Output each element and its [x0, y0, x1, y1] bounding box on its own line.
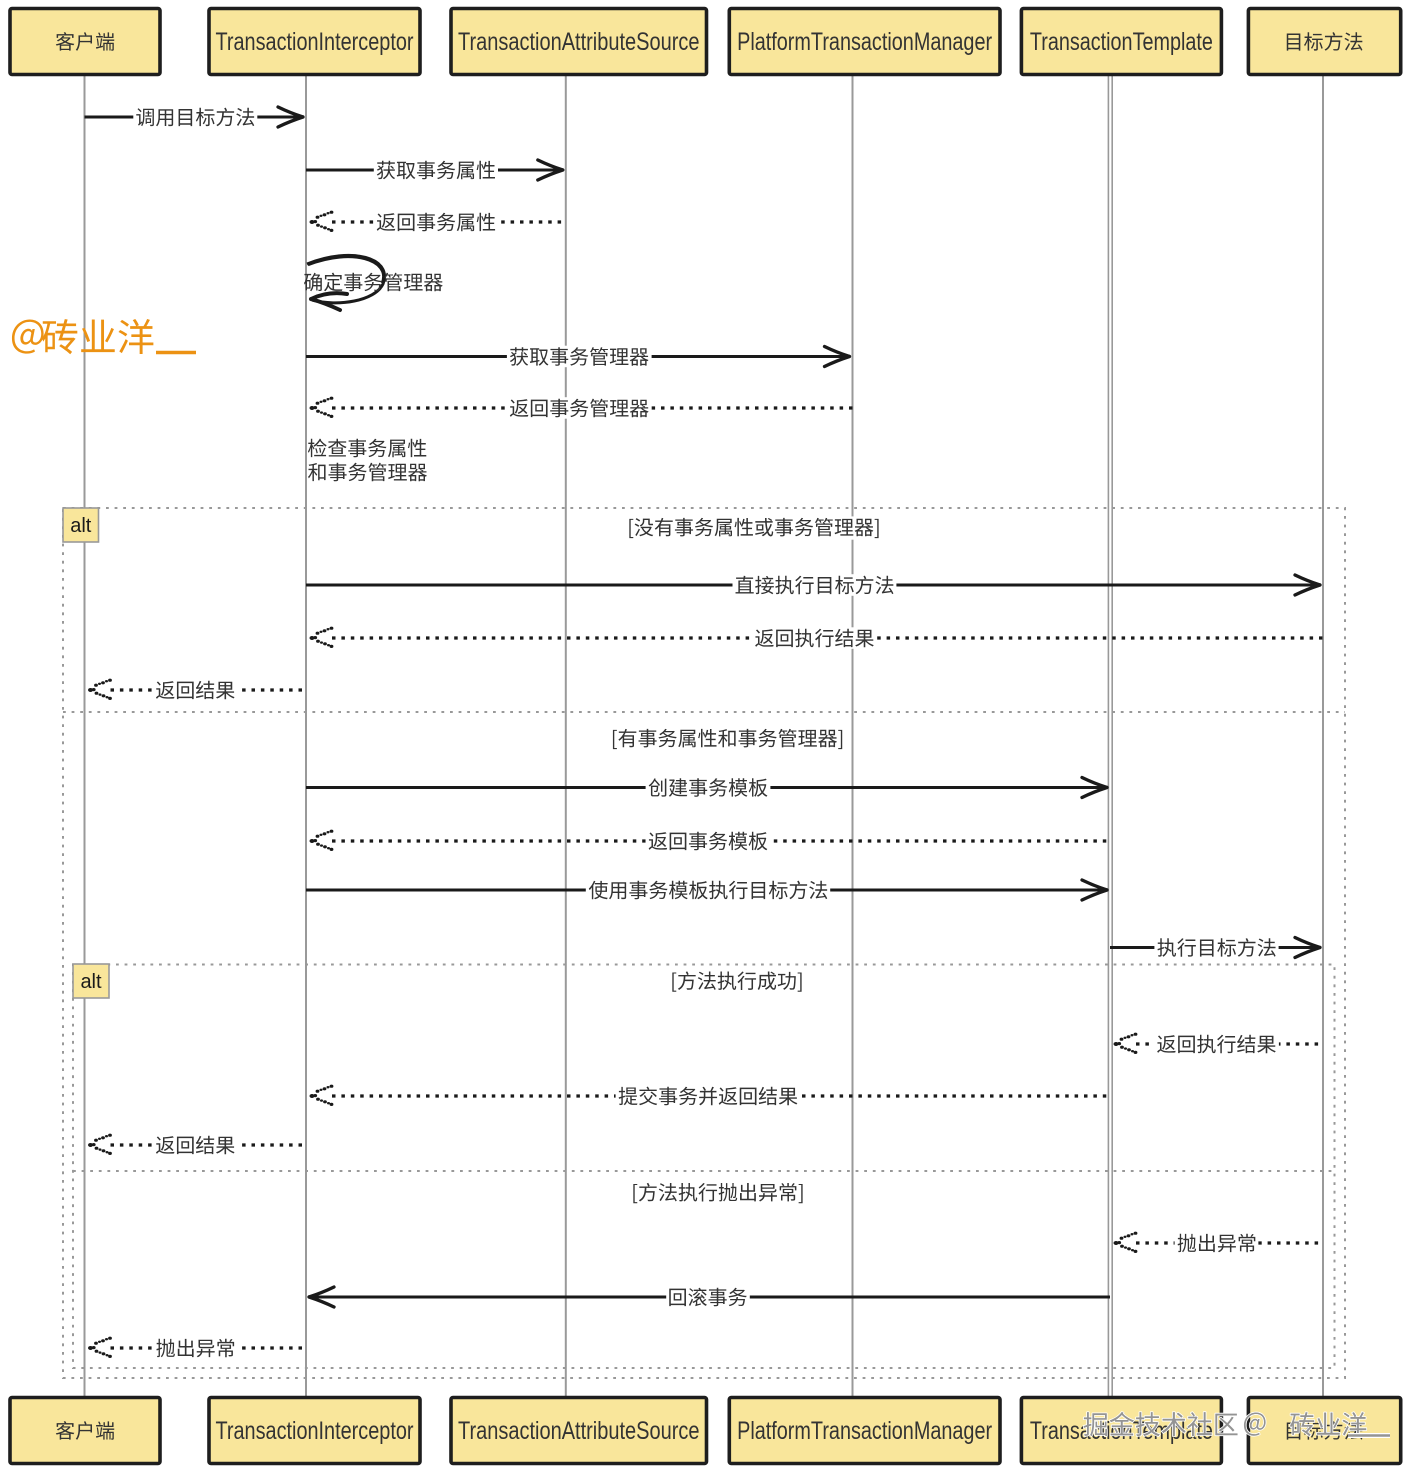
svg-text:TransactionTemplate: TransactionTemplate	[1030, 28, 1213, 56]
svg-text:TransactionAttributeSource: TransactionAttributeSource	[458, 28, 700, 56]
svg-text:PlatformTransactionManager: PlatformTransactionManager	[737, 1417, 992, 1445]
svg-text:TransactionAttributeSource: TransactionAttributeSource	[458, 1417, 700, 1445]
svg-text:alt: alt	[70, 515, 92, 537]
svg-text:TransactionInterceptor: TransactionInterceptor	[216, 28, 414, 56]
svg-text:TransactionInterceptor: TransactionInterceptor	[216, 1417, 414, 1445]
svg-text:PlatformTransactionManager: PlatformTransactionManager	[737, 28, 992, 56]
svg-text:alt: alt	[80, 971, 102, 993]
